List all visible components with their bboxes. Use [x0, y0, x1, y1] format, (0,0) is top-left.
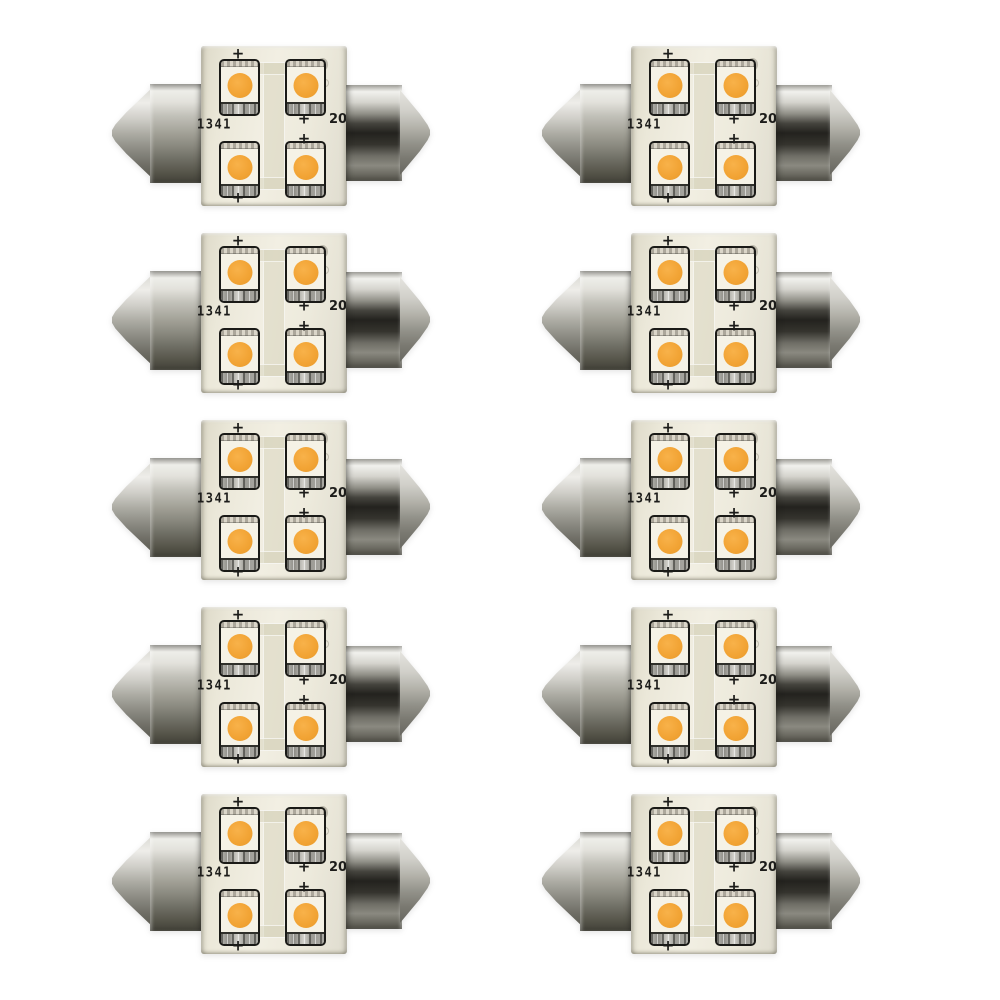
polarity-plus-mark: + [232, 378, 245, 393]
pcb-board: + + + + 1341 20 [631, 233, 777, 393]
pcb-marking-date-code: 1341 [197, 116, 232, 132]
led-die [657, 260, 682, 285]
led-die [293, 903, 318, 928]
led-electrode [717, 932, 754, 944]
end-cap-tip-right [400, 464, 430, 549]
pcb-board: + + + + 1341 20 [631, 420, 777, 580]
led-chip [285, 433, 326, 490]
pcb-marking-date-code: 1341 [197, 490, 232, 506]
end-cap-left [580, 832, 632, 931]
led-die [227, 903, 252, 928]
pcb-marking-date-code: 1341 [627, 677, 662, 693]
led-chip [219, 433, 260, 490]
pcb-marking-date-code: 1341 [627, 490, 662, 506]
pcb-marking-size-code: 20 [329, 486, 347, 501]
end-cap-left [150, 84, 202, 183]
led-electrode [287, 558, 324, 570]
end-cap-tip-right [400, 277, 430, 362]
led-electrode [221, 102, 258, 114]
end-cap-left [150, 832, 202, 931]
led-marking-band [651, 704, 688, 710]
led-die [293, 821, 318, 846]
polarity-plus-mark: + [728, 673, 741, 688]
end-cap-left [580, 271, 632, 370]
end-cap-tip-left [112, 460, 154, 554]
led-electrode [651, 102, 688, 114]
led-chip [219, 246, 260, 303]
led-festoon-bulb: + + + + 1341 20 [112, 420, 430, 580]
led-marking-band [717, 61, 754, 67]
led-marking-band [717, 809, 754, 815]
led-die [293, 342, 318, 367]
pcb-marking-size-code: 20 [329, 673, 347, 688]
pcb-marking-size-code: 20 [329, 112, 347, 127]
led-die [227, 155, 252, 180]
pcb-marking-date-code: 1341 [197, 303, 232, 319]
end-cap-right [346, 85, 402, 181]
led-electrode [717, 184, 754, 196]
led-chip [715, 889, 756, 946]
polarity-plus-mark: + [298, 506, 311, 521]
led-chip [285, 889, 326, 946]
led-electrode [287, 932, 324, 944]
end-cap-tip-left [542, 647, 584, 741]
polarity-plus-mark: + [662, 378, 675, 393]
polarity-plus-mark: + [232, 421, 245, 436]
led-marking-band [221, 330, 258, 336]
polarity-plus-mark: + [662, 47, 675, 62]
led-electrode [651, 850, 688, 862]
led-marking-band [651, 330, 688, 336]
led-die [227, 716, 252, 741]
end-cap-tip-right [830, 464, 860, 549]
pcb-marking-size-code: 20 [329, 299, 347, 314]
end-cap-tip-right [830, 277, 860, 362]
led-die [723, 155, 748, 180]
end-cap-left [580, 458, 632, 557]
end-cap-tip-left [542, 460, 584, 554]
led-chip [219, 59, 260, 116]
led-die [723, 529, 748, 554]
led-chip [219, 620, 260, 677]
led-electrode [221, 850, 258, 862]
end-cap-left [580, 84, 632, 183]
polarity-plus-mark: + [662, 608, 675, 623]
polarity-plus-mark: + [662, 939, 675, 954]
pcb-trace-vertical [263, 249, 285, 377]
polarity-plus-mark: + [728, 299, 741, 314]
pcb-marking-date-code: 1341 [627, 864, 662, 880]
end-cap-right [776, 459, 832, 555]
led-electrode [651, 663, 688, 675]
pcb-board: + + + + 1341 20 [631, 46, 777, 206]
led-chip [715, 328, 756, 385]
pcb-trace-vertical [263, 810, 285, 938]
polarity-plus-mark: + [728, 112, 741, 127]
led-marking-band [287, 809, 324, 815]
pcb-board: + + + + 1341 20 [201, 233, 347, 393]
led-die [227, 73, 252, 98]
polarity-plus-mark: + [662, 421, 675, 436]
polarity-plus-mark: + [298, 673, 311, 688]
pcb-trace-vertical [263, 436, 285, 564]
led-chip [715, 246, 756, 303]
polarity-plus-mark: + [298, 132, 311, 147]
led-die [657, 716, 682, 741]
pcb-board: + + + + 1341 20 [201, 46, 347, 206]
led-die [227, 529, 252, 554]
pcb-trace-vertical [693, 623, 715, 751]
polarity-plus-mark: + [232, 565, 245, 580]
led-marking-band [221, 704, 258, 710]
led-die [723, 260, 748, 285]
led-electrode [651, 289, 688, 301]
led-chip [649, 59, 690, 116]
led-marking-band [287, 248, 324, 254]
pcb-trace-vertical [693, 249, 715, 377]
end-cap-left [150, 271, 202, 370]
end-cap-right [776, 646, 832, 742]
polarity-plus-mark: + [298, 319, 311, 334]
led-die [723, 447, 748, 472]
led-electrode [717, 371, 754, 383]
polarity-plus-mark: + [232, 939, 245, 954]
led-marking-band [651, 143, 688, 149]
polarity-plus-mark: + [298, 860, 311, 875]
end-cap-right [346, 272, 402, 368]
end-cap-tip-right [830, 90, 860, 175]
led-marking-band [651, 517, 688, 523]
led-chip [285, 515, 326, 572]
led-chip [285, 807, 326, 864]
led-die [657, 529, 682, 554]
led-festoon-bulb: + + + + 1341 20 [542, 794, 860, 954]
pcb-trace-vertical [263, 623, 285, 751]
led-marking-band [651, 891, 688, 897]
end-cap-tip-left [112, 86, 154, 180]
led-chip [649, 620, 690, 677]
end-cap-tip-right [400, 838, 430, 923]
end-cap-left [580, 645, 632, 744]
pcb-board: + + + + 1341 20 [631, 794, 777, 954]
led-die [293, 716, 318, 741]
led-festoon-bulb: + + + + 1341 20 [542, 420, 860, 580]
end-cap-tip-right [830, 838, 860, 923]
pcb-marking-size-code: 20 [759, 860, 777, 875]
led-chip [219, 807, 260, 864]
end-cap-tip-left [112, 834, 154, 928]
led-chip [715, 141, 756, 198]
end-cap-left [150, 458, 202, 557]
led-chip [285, 620, 326, 677]
end-cap-tip-right [830, 651, 860, 736]
led-festoon-bulb: + + + + 1341 20 [112, 794, 430, 954]
polarity-plus-mark: + [662, 191, 675, 206]
led-die [657, 903, 682, 928]
led-die [657, 342, 682, 367]
led-die [227, 447, 252, 472]
led-marking-band [717, 435, 754, 441]
polarity-plus-mark: + [232, 608, 245, 623]
end-cap-right [346, 646, 402, 742]
end-cap-tip-left [542, 273, 584, 367]
polarity-plus-mark: + [728, 132, 741, 147]
pcb-trace-vertical [693, 436, 715, 564]
polarity-plus-mark: + [662, 234, 675, 249]
polarity-plus-mark: + [298, 299, 311, 314]
led-die [723, 821, 748, 846]
pcb-marking-size-code: 20 [759, 299, 777, 314]
led-chip [715, 515, 756, 572]
polarity-plus-mark: + [728, 693, 741, 708]
led-marking-band [221, 891, 258, 897]
led-die [723, 716, 748, 741]
led-chip [715, 807, 756, 864]
led-electrode [717, 558, 754, 570]
pcb-trace-vertical [693, 62, 715, 190]
led-electrode [287, 745, 324, 757]
led-die [293, 634, 318, 659]
led-die [227, 260, 252, 285]
led-marking-band [221, 143, 258, 149]
led-chip [649, 807, 690, 864]
polarity-plus-mark: + [232, 752, 245, 767]
led-chip [715, 433, 756, 490]
polarity-plus-mark: + [232, 191, 245, 206]
led-chip [649, 433, 690, 490]
pcb-board: + + + + 1341 20 [201, 607, 347, 767]
end-cap-tip-right [400, 90, 430, 175]
led-die [657, 447, 682, 472]
end-cap-tip-left [542, 834, 584, 928]
led-die [227, 821, 252, 846]
led-festoon-bulb: + + + + 1341 20 [542, 607, 860, 767]
led-die [657, 73, 682, 98]
pcb-marking-size-code: 20 [759, 112, 777, 127]
pcb-marking-date-code: 1341 [197, 864, 232, 880]
pcb-marking-size-code: 20 [759, 486, 777, 501]
led-marking-band [221, 517, 258, 523]
led-chip [285, 702, 326, 759]
pcb-board: + + + + 1341 20 [201, 794, 347, 954]
led-die [723, 903, 748, 928]
polarity-plus-mark: + [728, 319, 741, 334]
led-marking-band [717, 622, 754, 628]
pcb-trace-vertical [263, 62, 285, 190]
end-cap-tip-left [112, 273, 154, 367]
end-cap-right [346, 833, 402, 929]
pcb-board: + + + + 1341 20 [631, 607, 777, 767]
led-electrode [651, 476, 688, 488]
led-electrode [221, 476, 258, 488]
led-die [227, 342, 252, 367]
polarity-plus-mark: + [662, 752, 675, 767]
end-cap-right [776, 833, 832, 929]
led-marking-band [717, 248, 754, 254]
polarity-plus-mark: + [728, 486, 741, 501]
led-electrode [717, 745, 754, 757]
led-die [723, 634, 748, 659]
led-die [293, 260, 318, 285]
pcb-trace-vertical [693, 810, 715, 938]
pcb-marking-date-code: 1341 [627, 116, 662, 132]
end-cap-right [346, 459, 402, 555]
led-electrode [287, 371, 324, 383]
led-marking-band [287, 61, 324, 67]
led-die [293, 155, 318, 180]
polarity-plus-mark: + [728, 506, 741, 521]
end-cap-left [150, 645, 202, 744]
led-die [657, 821, 682, 846]
led-die [293, 529, 318, 554]
polarity-plus-mark: + [728, 880, 741, 895]
polarity-plus-mark: + [728, 860, 741, 875]
led-die [293, 447, 318, 472]
polarity-plus-mark: + [662, 795, 675, 810]
led-chip [715, 620, 756, 677]
polarity-plus-mark: + [232, 795, 245, 810]
led-marking-band [287, 435, 324, 441]
led-die [293, 73, 318, 98]
polarity-plus-mark: + [232, 234, 245, 249]
polarity-plus-mark: + [662, 565, 675, 580]
led-marking-band [287, 622, 324, 628]
led-chip [649, 246, 690, 303]
led-electrode [221, 663, 258, 675]
led-die [657, 634, 682, 659]
led-die [723, 342, 748, 367]
led-chip [285, 246, 326, 303]
led-festoon-bulb: + + + + 1341 20 [112, 46, 430, 206]
pcb-board: + + + + 1341 20 [201, 420, 347, 580]
led-die [657, 155, 682, 180]
led-festoon-bulb: + + + + 1341 20 [542, 233, 860, 393]
led-festoon-bulb: + + + + 1341 20 [112, 607, 430, 767]
led-electrode [287, 184, 324, 196]
led-electrode [221, 289, 258, 301]
led-chip [285, 328, 326, 385]
polarity-plus-mark: + [298, 486, 311, 501]
product-photo-grid: + + + + 1341 20 [112, 46, 860, 954]
end-cap-right [776, 85, 832, 181]
polarity-plus-mark: + [298, 880, 311, 895]
led-die [723, 73, 748, 98]
end-cap-tip-right [400, 651, 430, 736]
led-chip [285, 59, 326, 116]
end-cap-right [776, 272, 832, 368]
led-chip [715, 59, 756, 116]
polarity-plus-mark: + [232, 47, 245, 62]
polarity-plus-mark: + [298, 693, 311, 708]
end-cap-tip-left [542, 86, 584, 180]
led-chip [285, 141, 326, 198]
pcb-marking-size-code: 20 [759, 673, 777, 688]
led-die [227, 634, 252, 659]
led-festoon-bulb: + + + + 1341 20 [112, 233, 430, 393]
led-festoon-bulb: + + + + 1341 20 [542, 46, 860, 206]
pcb-marking-date-code: 1341 [627, 303, 662, 319]
polarity-plus-mark: + [298, 112, 311, 127]
end-cap-tip-left [112, 647, 154, 741]
led-chip [715, 702, 756, 759]
pcb-marking-size-code: 20 [329, 860, 347, 875]
pcb-marking-date-code: 1341 [197, 677, 232, 693]
